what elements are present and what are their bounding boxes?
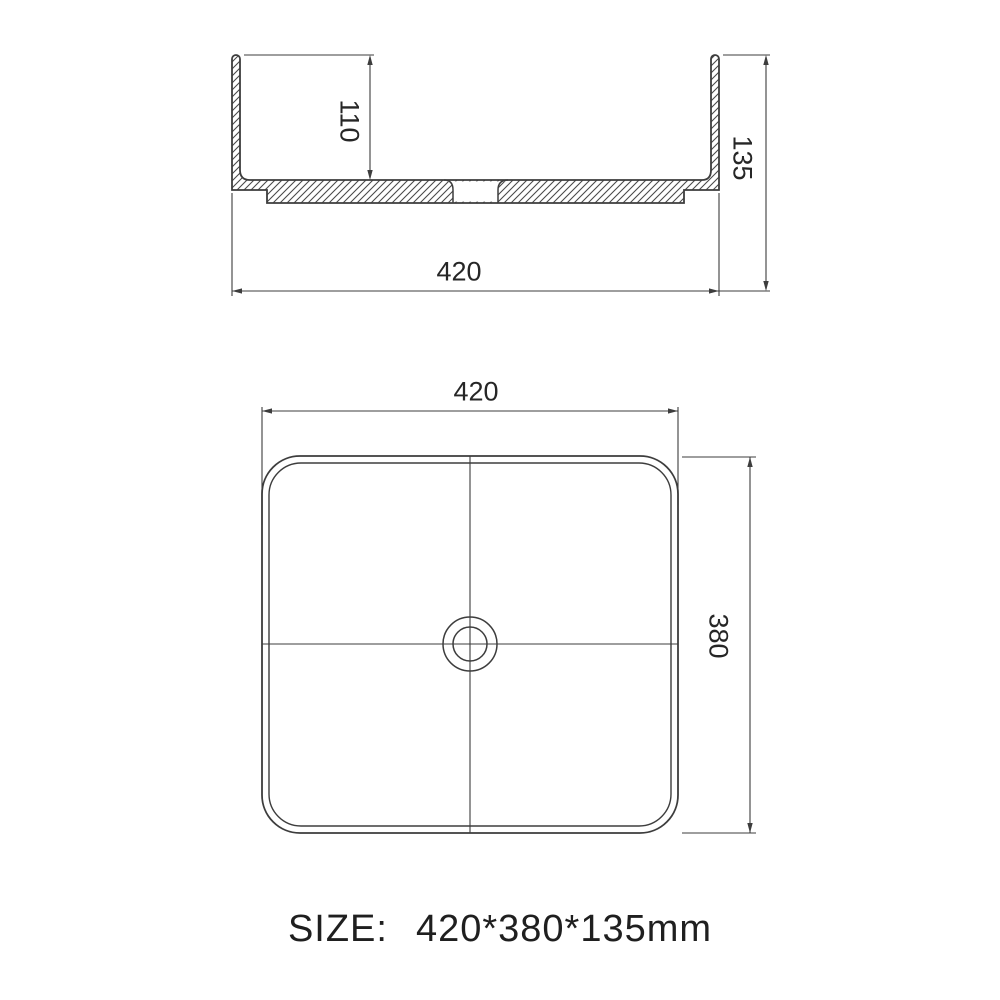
size-caption-label: SIZE:	[288, 908, 388, 950]
section-dim-width-label: 420	[436, 259, 481, 286]
size-caption-value: 420*380*135mm	[416, 908, 712, 950]
section-basin-profile	[232, 55, 719, 203]
drawing-linework	[0, 0, 1000, 1000]
technical-drawing-canvas: 110 135 420 420 380 SIZE:420*380*135mm	[0, 0, 1000, 1000]
plan-dim-width-label: 420	[453, 379, 498, 406]
section-dim-height-label: 135	[729, 135, 756, 180]
plan-dim-depth-label: 380	[705, 613, 732, 658]
plan-view-linework	[262, 407, 756, 833]
section-dim-inner-depth-label: 110	[336, 99, 363, 142]
section-view-linework	[232, 55, 770, 296]
section-dim-width-lines	[232, 193, 770, 296]
size-caption: SIZE:420*380*135mm	[0, 908, 1000, 951]
